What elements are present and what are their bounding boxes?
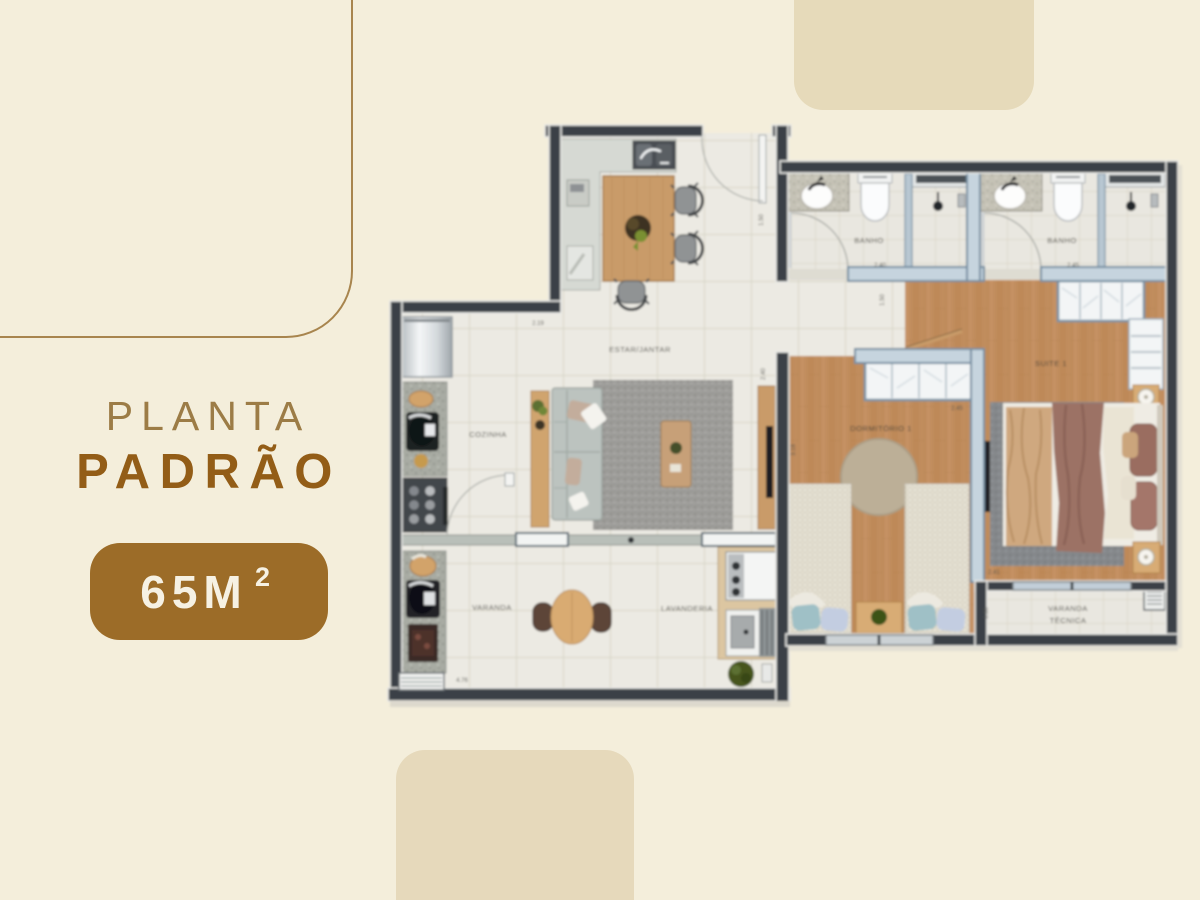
svg-text:0.60: 0.60 [984, 607, 990, 619]
svg-text:65M: 65M [140, 566, 247, 618]
svg-text:TÉCNICA: TÉCNICA [1050, 616, 1087, 625]
svg-text:1.50: 1.50 [759, 214, 765, 226]
svg-text:2.40: 2.40 [874, 263, 886, 269]
svg-text:SUITE 1: SUITE 1 [1035, 359, 1067, 368]
svg-text:COZINHA: COZINHA [469, 430, 507, 439]
svg-text:2: 2 [255, 562, 270, 592]
svg-text:3.18: 3.18 [791, 444, 797, 456]
svg-text:2.45: 2.45 [951, 406, 963, 412]
svg-text:4.76: 4.76 [456, 678, 468, 684]
svg-text:LAVANDERIA: LAVANDERIA [661, 604, 713, 613]
svg-text:2.41: 2.41 [988, 570, 1000, 576]
svg-text:2.19: 2.19 [532, 321, 544, 327]
svg-text:DORMITÓRIO 1: DORMITÓRIO 1 [850, 424, 912, 433]
svg-text:PADRÃO: PADRÃO [76, 445, 342, 499]
svg-text:2.40: 2.40 [761, 368, 767, 380]
svg-text:ESTAR/JANTAR: ESTAR/JANTAR [609, 345, 671, 354]
svg-text:1.50: 1.50 [880, 294, 886, 306]
svg-text:VARANDA: VARANDA [472, 603, 512, 612]
svg-text:BANHO: BANHO [1047, 236, 1077, 245]
svg-text:PLANTA: PLANTA [106, 393, 310, 439]
svg-text:VARANDA: VARANDA [1048, 604, 1088, 613]
svg-text:2.45: 2.45 [1067, 263, 1079, 269]
svg-text:BANHO: BANHO [854, 236, 884, 245]
